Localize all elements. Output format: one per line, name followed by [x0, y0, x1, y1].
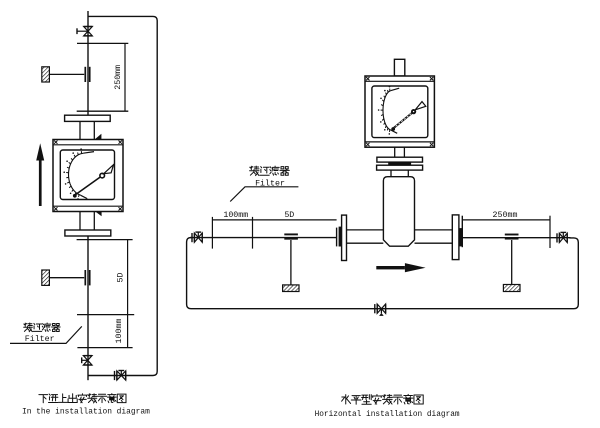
svg-text:5D: 5D	[284, 211, 294, 220]
svg-text:Filter: Filter	[25, 334, 55, 344]
svg-text:100mm: 100mm	[115, 319, 124, 344]
svg-text:250mm: 250mm	[114, 65, 123, 90]
svg-text:In the installation diagram: In the installation diagram	[22, 408, 150, 417]
svg-text:Horizontal installation diagra: Horizontal installation diagram	[315, 411, 460, 419]
svg-text:100mm: 100mm	[223, 211, 248, 220]
svg-text:250mm: 250mm	[493, 211, 518, 220]
svg-text:5D: 5D	[116, 273, 125, 283]
